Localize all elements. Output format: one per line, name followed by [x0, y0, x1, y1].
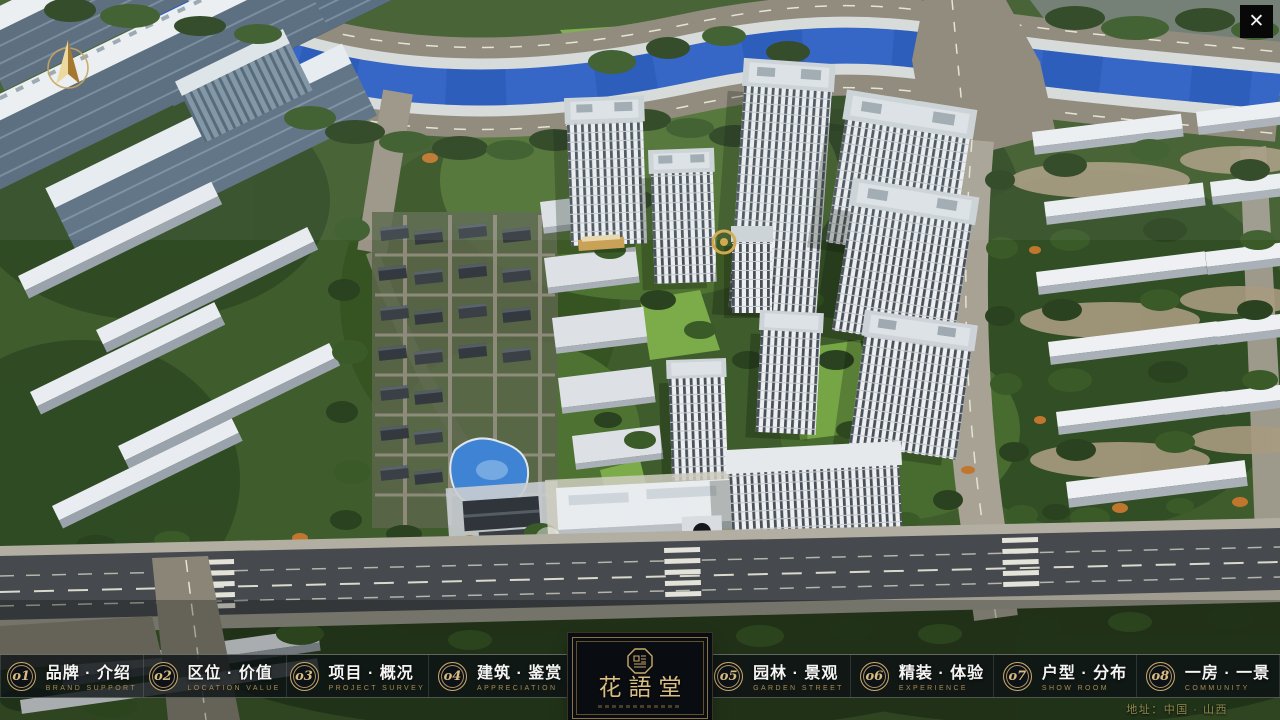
presentation-screen: ✕ o1 品牌 · 介绍BRAND SUPPORT o2 区位 · 价值LOCA…: [0, 0, 1280, 720]
nav-label-en: BRAND SUPPORT: [46, 685, 137, 693]
nav-label-zh: 园林 · 景观: [753, 659, 838, 683]
nav-label-zh: 精装 · 体验: [899, 659, 984, 683]
nav-item-floorplan-distribution[interactable]: o7 户型 · 分布SHOW ROOM: [994, 655, 1137, 697]
nav-label-en: PROJECT SURVEY: [329, 685, 426, 693]
logo-title: 花語堂: [592, 676, 689, 700]
close-button[interactable]: ✕: [1240, 5, 1273, 38]
number-badge-o6: o6: [860, 662, 889, 691]
nav-label-zh: 区位 · 价值: [188, 659, 273, 683]
logo-plaque[interactable]: 花語堂: [572, 637, 708, 719]
nav-label-en: LOCATION VALUE: [188, 685, 281, 693]
nav-label-zh: 项目 · 概况: [329, 659, 414, 683]
nav-item-architecture[interactable]: o4 建筑 · 鉴赏APPRECIATION: [429, 655, 572, 697]
number-badge-o7: o7: [1003, 662, 1032, 691]
number-badge-o4: o4: [438, 662, 467, 691]
nav-label-en: APPRECIATION: [477, 685, 557, 693]
nav-group-left: o1 品牌 · 介绍BRAND SUPPORT o2 区位 · 价值LOCATI…: [0, 655, 572, 697]
number-badge-o2: o2: [149, 662, 178, 691]
nav-item-project-survey[interactable]: o3 项目 · 概况PROJECT SURVEY: [287, 655, 430, 697]
nav-group-right: o5 园林 · 景观GARDEN STREET o6 精装 · 体验EXPERI…: [708, 655, 1280, 697]
number-badge-o5: o5: [714, 662, 743, 691]
nav-item-garden-landscape[interactable]: o5 园林 · 景观GARDEN STREET: [708, 655, 851, 697]
close-icon: ✕: [1249, 10, 1265, 32]
bottom-navbar: o1 品牌 · 介绍BRAND SUPPORT o2 区位 · 价值LOCATI…: [0, 654, 1280, 698]
number-badge-o1: o1: [7, 662, 36, 691]
aerial-render: [0, 0, 1280, 720]
nav-item-brand-intro[interactable]: o1 品牌 · 介绍BRAND SUPPORT: [0, 655, 144, 697]
nav-label-en: COMMUNITY: [1185, 685, 1250, 693]
nav-label-en: SHOW ROOM: [1042, 685, 1109, 693]
seal-icon: [627, 648, 653, 674]
nav-label-zh: 户型 · 分布: [1042, 659, 1127, 683]
nav-label-zh: 建筑 · 鉴赏: [477, 659, 562, 683]
logo-subtext-line: [598, 705, 682, 708]
nav-label-zh: 品牌 · 介绍: [46, 659, 131, 683]
nav-item-interior-experience[interactable]: o6 精装 · 体验EXPERIENCE: [851, 655, 994, 697]
nav-label-zh: 一房 · 一景: [1185, 659, 1270, 683]
nav-label-en: EXPERIENCE: [899, 685, 968, 693]
number-badge-o8: o8: [1146, 662, 1175, 691]
address-text: 地址：中国 · 山西: [1126, 701, 1228, 717]
nav-item-room-view[interactable]: o8 一房 · 一景COMMUNITY: [1137, 655, 1280, 697]
haze: [0, 0, 1280, 240]
nav-item-location-value[interactable]: o2 区位 · 价值LOCATION VALUE: [144, 655, 287, 697]
number-badge-o3: o3: [290, 662, 319, 691]
nav-label-en: GARDEN STREET: [753, 685, 844, 693]
